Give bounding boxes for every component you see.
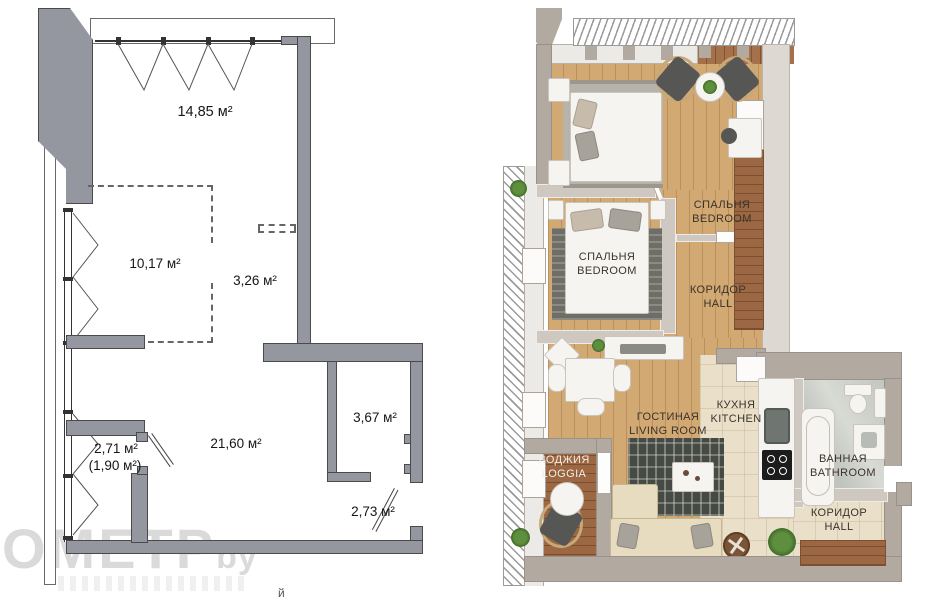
- desk-chair: [721, 128, 737, 144]
- floor-plant: [768, 528, 796, 556]
- nightstand: [548, 160, 570, 186]
- right-wall-upper: [762, 44, 790, 356]
- watermark-stray-char: й: [278, 586, 285, 600]
- room-label-hall-2: КОРИДОР HALL: [800, 506, 878, 534]
- furnished-floor-plan: СПАЛЬНЯ BEDROOM СПАЛЬНЯ BEDROOM КОРИДОР …: [465, 0, 930, 600]
- label-ru: СПАЛЬНЯ: [567, 250, 647, 264]
- label-ru: ВАННАЯ: [802, 452, 884, 466]
- nightstand: [650, 200, 666, 220]
- wall-bottom-center: [131, 473, 148, 543]
- room-label-bedroom-1: СПАЛЬНЯ BEDROOM: [678, 198, 766, 226]
- bed-pillow: [608, 208, 642, 232]
- coffee-table: [672, 462, 714, 492]
- cooktop-burner: [767, 455, 775, 463]
- label-en: BATHROOM: [802, 466, 884, 480]
- window-tick: [63, 208, 73, 212]
- dining-chair: [548, 364, 566, 392]
- outer-balcony-outline: [44, 145, 56, 585]
- label-en: HALL: [682, 297, 754, 311]
- label-en: BEDROOM: [678, 212, 766, 226]
- label-ru: КОРИДОР: [800, 506, 878, 520]
- area-label: 21,60 м²: [203, 436, 269, 451]
- label-ru: СПАЛЬНЯ: [678, 198, 766, 212]
- sideboard-plant: [592, 339, 605, 352]
- planter-box: [522, 392, 546, 428]
- label-en: LIVING ROOM: [612, 424, 724, 438]
- room-label-bathroom: ВАННАЯ BATHROOM: [802, 452, 884, 480]
- wall-367-left: [327, 361, 337, 474]
- wall-bottom: [66, 540, 423, 554]
- window-tick: [63, 277, 73, 281]
- cooktop-burner: [779, 455, 787, 463]
- area-label: 2,71 м²: [88, 441, 144, 456]
- label-ru: КУХНЯ: [700, 398, 772, 412]
- top-balcony-railing: [573, 18, 795, 46]
- left-window-wall: [64, 208, 72, 542]
- area-label: (1,90 м²): [82, 458, 148, 473]
- loggia-table: [550, 482, 584, 516]
- bath-block-top-wall: [756, 352, 902, 380]
- door-jamb: [404, 464, 411, 474]
- label-ru: КОРИДОР: [682, 283, 754, 297]
- wall-367-bottom-stub: [327, 472, 371, 482]
- label-en: BEDROOM: [567, 264, 647, 278]
- sideboard-tray: [620, 344, 666, 354]
- label-en: KITCHEN: [700, 412, 772, 426]
- dining-table: [565, 358, 615, 402]
- cooktop-burner: [779, 467, 787, 475]
- wall-right-main: [297, 36, 311, 346]
- balcony-plant: [510, 180, 527, 197]
- entrance-step: [896, 482, 912, 506]
- table-plant: [703, 80, 717, 94]
- bath-shelf: [874, 388, 886, 418]
- area-label: 2,73 м²: [346, 504, 400, 519]
- label-ru: ЛОДЖИЯ: [531, 453, 597, 467]
- top-window-line: [95, 40, 297, 42]
- area-label: 3,67 м²: [348, 410, 402, 425]
- wall-mid-left: [66, 335, 145, 349]
- door-leaf-271: [148, 433, 174, 467]
- area-label: 14,85 м²: [150, 104, 260, 120]
- cooktop: [762, 450, 792, 480]
- label-en: LOGGIA: [531, 467, 597, 481]
- toilet-bowl: [849, 394, 867, 414]
- entry-mat: [800, 540, 886, 566]
- window-tick: [63, 410, 73, 414]
- label-en: HALL: [800, 520, 878, 534]
- room-label-kitchen: КУХНЯ KITCHEN: [700, 398, 772, 426]
- dashed-outline: [148, 341, 213, 343]
- sofa-pillow: [690, 522, 714, 549]
- dashed-outline: [211, 283, 213, 343]
- dashed-outline: [88, 185, 213, 187]
- nightstand: [548, 78, 570, 102]
- window-swing-top: [118, 44, 258, 94]
- door-jamb: [404, 434, 411, 444]
- window-swing-left: [73, 213, 103, 343]
- planter-box: [522, 248, 546, 284]
- coffee-table-decor: [695, 476, 700, 481]
- sofa-pillow: [616, 522, 640, 549]
- floor-plans-image: ОМЕТРby й: [0, 0, 930, 600]
- wall-271-top: [66, 420, 145, 436]
- left-balcony-railing: [503, 166, 525, 586]
- coffee-table-decor: [683, 470, 689, 476]
- area-label: 10,17 м²: [120, 256, 190, 271]
- dashed-vent: [258, 224, 296, 233]
- window-tick: [63, 474, 73, 478]
- balcony-plant: [511, 528, 530, 547]
- room-label-bedroom-2: СПАЛЬНЯ BEDROOM: [567, 250, 647, 278]
- wall-367-top: [263, 343, 423, 362]
- wall-hook: [281, 36, 298, 45]
- washer-door: [861, 432, 877, 448]
- technical-floor-plan: 14,85 м² 10,17 м² 3,26 м² 21,60 м² 3,67 …: [0, 0, 465, 600]
- room-label-hall-1: КОРИДОР HALL: [682, 283, 754, 311]
- bedroom1-hall-stub: [676, 234, 720, 242]
- cooktop-burner: [767, 467, 775, 475]
- area-label: 3,26 м²: [228, 273, 282, 288]
- nightstand: [548, 200, 564, 220]
- dining-chair: [613, 364, 631, 392]
- loggia-door: [597, 452, 611, 494]
- room-label-loggia: ЛОДЖИЯ LOGGIA: [531, 453, 597, 481]
- dashed-outline: [211, 185, 213, 243]
- wall-367-right: [410, 361, 423, 483]
- dining-chair: [577, 398, 605, 416]
